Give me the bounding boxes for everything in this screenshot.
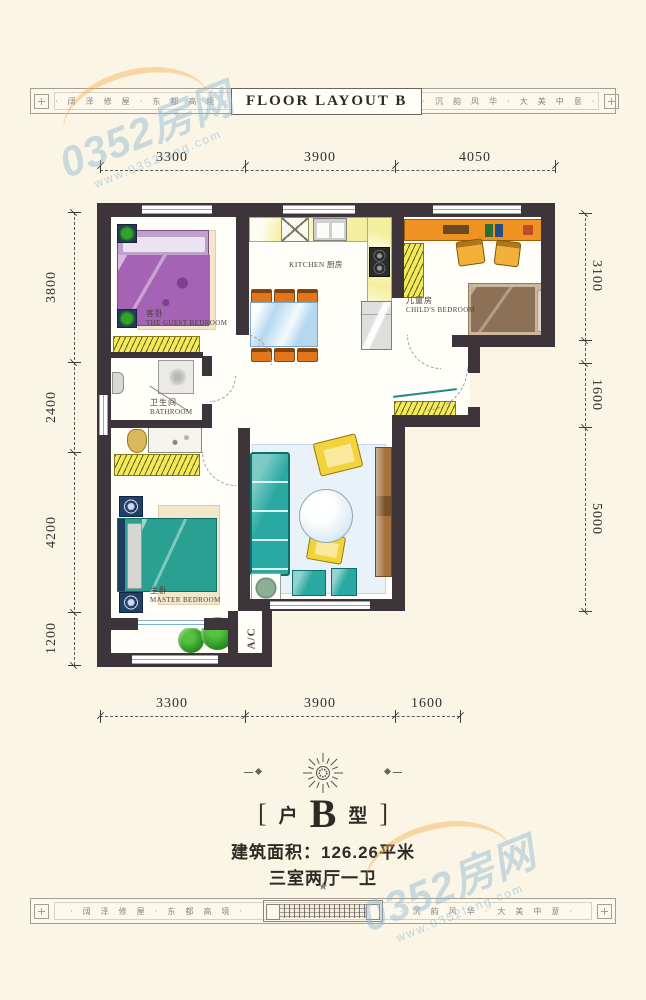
dim-tick — [579, 427, 592, 428]
kitchen-label-text: KITCHEN 厨房 — [289, 260, 343, 270]
compass-side-mark — [393, 772, 402, 773]
dim-tick — [460, 710, 461, 723]
dim-label: 1600 — [588, 365, 604, 425]
watermark: 0352房网 www.0352fang.com — [38, 37, 246, 199]
child-bedroom-label: 儿童房 CHILD'S BEDROOM — [406, 296, 475, 315]
dim-label: 4050 — [445, 150, 505, 166]
child-desk — [404, 219, 544, 241]
sofa — [250, 452, 290, 576]
dim-tick — [245, 710, 246, 723]
lattice-end — [366, 904, 380, 920]
wall — [238, 428, 250, 611]
guest-bedroom-label: 客卧 THE GUEST BEDROOM — [146, 309, 227, 328]
dim-tick — [100, 160, 101, 173]
band-rosette-icon — [34, 94, 49, 109]
band-inner: · 阔 泽 修 屋 · 东 都 高 境 · FLOOR LAYOUT B · 沉… — [54, 92, 599, 110]
shower — [158, 360, 194, 394]
dim-label: 3300 — [142, 696, 202, 712]
master-bed-blanket — [142, 519, 218, 593]
band-text-left: · 阔 泽 修 屋 · 东 都 高 境 · — [55, 96, 231, 107]
floor-plan-page: · 阔 泽 修 屋 · 东 都 高 境 · FLOOR LAYOUT B · 沉… — [0, 0, 646, 1000]
potted-plant — [117, 309, 137, 328]
guest-bedroom-label-en: THE GUEST BEDROOM — [146, 319, 227, 328]
wall — [202, 356, 212, 376]
window — [99, 395, 108, 435]
kitchen-label: KITCHEN 厨房 — [289, 260, 343, 270]
fridge — [361, 301, 392, 350]
compass-side-diamond-icon — [255, 768, 262, 775]
band-text-left: · 阔 泽 修 屋 · 东 都 高 境 · — [55, 906, 261, 917]
wall — [111, 420, 212, 428]
wall — [541, 203, 555, 347]
bracket-left: [ — [258, 799, 267, 829]
cooktop — [369, 247, 390, 277]
compass-side-mark — [244, 772, 253, 773]
unit-type-cn2: 型 — [348, 801, 367, 828]
wall — [392, 203, 404, 298]
dim-tick — [68, 612, 81, 613]
wall — [392, 415, 480, 427]
dim-line-top — [100, 170, 555, 171]
tv-cabinet — [375, 447, 392, 577]
unit-type-cn: 户 — [279, 801, 298, 828]
floor-layout-title: FLOOR LAYOUT B — [246, 93, 407, 109]
child-bedroom-label-en: CHILD'S BEDROOM — [406, 306, 475, 315]
window — [283, 205, 355, 214]
bathroom-label: 卫生间 BATHROOM — [150, 398, 192, 417]
potted-plant — [117, 224, 137, 243]
dim-tick — [579, 213, 592, 214]
dim-line-right — [585, 213, 586, 611]
band-lattice-ornament — [263, 900, 383, 922]
dresser — [148, 427, 202, 453]
dim-label: 3800 — [44, 257, 60, 317]
master-bed-headboard — [118, 519, 125, 591]
top-decor-band: · 阔 泽 修 屋 · 东 都 高 境 · FLOOR LAYOUT B · 沉… — [30, 88, 616, 114]
guest-bedroom-label-cn: 客卧 — [146, 309, 227, 319]
dim-tick — [100, 710, 101, 723]
band-rosette-icon — [597, 904, 612, 919]
band-rosette-icon — [604, 94, 619, 109]
kitchen-sink — [313, 218, 347, 241]
dim-tick — [68, 665, 81, 666]
master-bed — [117, 518, 217, 592]
bathroom-label-en: BATHROOM — [150, 408, 192, 417]
dim-label: 4200 — [44, 502, 60, 562]
dim-tick — [245, 160, 246, 173]
unit-type-row: [ 户 B 型 ] — [0, 794, 646, 834]
band-rosette-icon — [34, 904, 49, 919]
dim-label: 5000 — [588, 489, 604, 549]
dim-tick — [395, 160, 396, 173]
child-wardrobe — [403, 243, 424, 298]
bottom-decor-band: · 阔 泽 修 屋 · 东 都 高 境 · · 沉 韵 风 华 · 大 美 中 … — [30, 898, 616, 924]
wall — [392, 427, 405, 611]
wall — [236, 203, 249, 335]
bracket-right: ] — [379, 799, 388, 829]
dim-tick — [579, 611, 592, 612]
coffee-table — [299, 489, 353, 543]
master-bed-pillow — [127, 523, 142, 589]
dining-chair — [297, 348, 318, 362]
dining-chair — [274, 348, 295, 362]
window — [142, 205, 212, 214]
master-wardrobe — [114, 454, 200, 476]
window — [433, 205, 521, 214]
child-bed — [468, 283, 552, 336]
band-text-right: · 沉 韵 风 华 · 大 美 中 意 · — [385, 906, 591, 917]
bathroom-label-cn: 卫生间 — [150, 398, 192, 408]
dim-tick — [68, 452, 81, 453]
master-bedroom-label: 主卧 MASTER BEDROOM — [150, 586, 221, 605]
window — [132, 655, 218, 664]
dining-chair — [251, 289, 272, 303]
band-inner: · 阔 泽 修 屋 · 东 都 高 境 · · 沉 韵 风 华 · 大 美 中 … — [54, 902, 592, 920]
wall — [228, 611, 238, 667]
ottoman — [331, 568, 357, 596]
wall — [468, 347, 480, 373]
dim-label: 1600 — [397, 696, 457, 712]
unit-type-letter: B — [310, 794, 337, 834]
master-bedroom-label-cn: 主卧 — [150, 586, 221, 596]
lattice-end — [266, 904, 280, 920]
wall — [262, 611, 272, 667]
kitchen-cabinet — [281, 217, 309, 242]
child-bedroom-label-cn: 儿童房 — [406, 296, 475, 306]
wall — [111, 352, 203, 358]
dim-label: 2400 — [44, 377, 60, 437]
ac-label-text: A/C — [246, 627, 258, 649]
dim-tick — [555, 160, 556, 173]
dining-chair — [274, 289, 295, 303]
dim-tick — [395, 710, 396, 723]
desk-chair — [494, 240, 522, 268]
master-bedroom-label-en: MASTER BEDROOM — [150, 596, 221, 605]
nightstand — [119, 592, 143, 613]
window — [270, 601, 370, 609]
dim-label: 3900 — [290, 696, 350, 712]
nightstand — [119, 496, 143, 517]
dim-label: 3300 — [142, 150, 202, 166]
child-bed-blanket — [471, 287, 535, 332]
ottoman — [292, 570, 326, 596]
dim-tick — [579, 340, 592, 341]
wall — [110, 618, 138, 630]
built-area-text: 建筑面积：126.26平米 — [0, 838, 646, 863]
dim-line-left — [74, 212, 75, 665]
wall — [452, 335, 555, 347]
dim-line-bottom — [100, 716, 460, 717]
dining-chair — [297, 289, 318, 303]
compass-icon — [300, 750, 346, 796]
dim-label: 3900 — [290, 150, 350, 166]
stool — [127, 429, 147, 453]
dim-label: 1200 — [44, 608, 60, 668]
compass-side-diamond-icon — [384, 768, 391, 775]
band-text-right: · 沉 韵 风 华 · 大 美 中 意 · — [422, 96, 598, 107]
bathroom-sink — [112, 372, 124, 394]
star-icon: ★ — [0, 880, 646, 893]
balcony-slider-window — [138, 620, 204, 628]
ac-label: A/C — [241, 619, 262, 649]
dim-tick — [68, 212, 81, 213]
desk-chair — [455, 238, 485, 267]
dim-tick — [68, 362, 81, 363]
dim-tick — [579, 363, 592, 364]
watermark-brand: 0352房网 — [49, 65, 242, 190]
floor-layout-title-box: FLOOR LAYOUT B — [231, 88, 422, 115]
dim-label: 3100 — [588, 246, 604, 306]
wall — [97, 203, 111, 667]
